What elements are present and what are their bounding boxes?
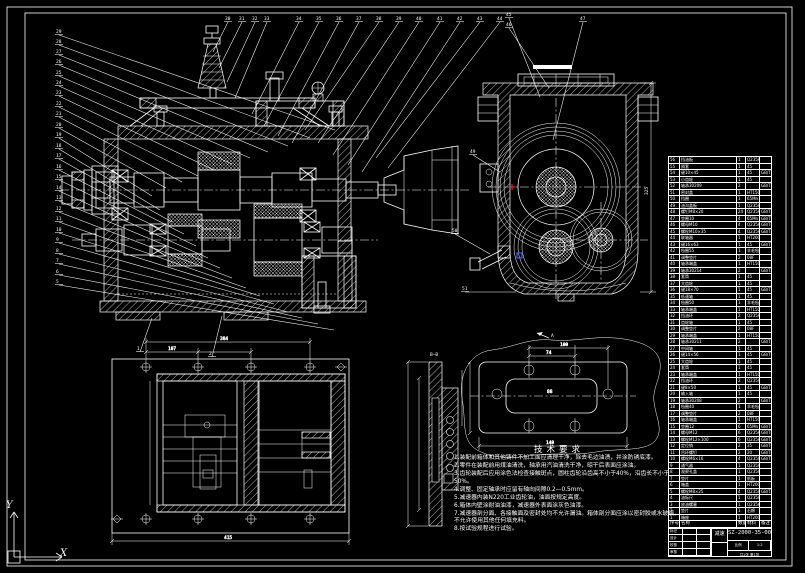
balloon-number: 2 [209,351,212,357]
parts-list-cell: 44 [669,235,680,241]
balloon-number: 27 [56,49,62,55]
parts-list-cell: 25 [669,359,680,365]
parts-list-cell: GB/T93 [760,424,771,430]
parts-list-cell: 箱盖 [680,482,737,488]
balloon-leader [292,22,359,143]
parts-list-cell: 12 [669,443,680,449]
parts-list-cell: 垫片 [680,508,737,514]
parts-list-cell: 低速轴 [680,294,737,300]
parts-list-cell: 羊毛毡 [746,248,760,254]
parts-list-cell: 调整垫片 [680,255,737,261]
drawing-number: SZ-2000-35-00 [728,528,771,541]
parts-list-cell: 挡油环 [680,378,737,384]
parts-list: 56挡油板1Q235A55隔套14554键10×45145GB/T109653小… [668,156,772,529]
parts-list-cell: 联轴器 [680,235,737,241]
balloon-number: 23 [56,90,62,96]
parts-list-cell: 1 [737,164,746,170]
parts-list-cell: Q235A [746,203,760,209]
balloon-leader [362,22,460,172]
parts-list-cell: 45 [746,164,760,170]
parts-list-cell [746,268,760,274]
input-shaft-train [92,146,458,238]
parts-list-cell: 38 [669,274,680,280]
parts-list-cell: 3 [669,502,680,508]
balloon-leader [59,243,274,304]
parts-list-cell: 45 [746,294,760,300]
parts-list-cell [760,482,771,488]
tech-req-items: 1.装配前箱体和其他铸件不加工面应清理干净，除去毛边油渍，并涂防锈底漆。2.零件… [454,455,680,534]
dim-cover-1: 100 [560,342,568,348]
dim-plan-1: 384 [220,336,228,342]
parts-list-cell: 24 [669,365,680,371]
view-direction-arrow: A [537,332,554,339]
tb-label-mark: 标记 [669,528,683,535]
parts-list-cell: 1 [737,404,746,410]
plan-right-chamber [259,430,331,488]
parts-list-cell: 08F [746,326,760,332]
parts-list-cell [760,177,771,183]
balloon-number: 8 [56,248,59,254]
parts-list-cell: 垫圈10 [680,216,737,222]
drawing-name: 减速器 [712,528,727,543]
parts-list-cell: 隔套 [680,164,737,170]
parts-list-cell: 1 [737,385,746,391]
dim-plan-3: 415 [224,535,232,541]
balloon-number: 12 [56,206,62,212]
balloon-number: 51 [462,286,468,292]
parts-list-cell: Q235A [746,469,760,475]
parts-list-cell: 08F [746,255,760,261]
side-view: 325 [470,65,658,301]
parts-list-cell: Q235A [746,463,760,469]
balloon-number: 7 [56,258,59,264]
balloon-number: 16 [56,164,62,170]
parts-list-cell: 1 [737,346,746,352]
tb-label-check: 校核 [669,542,683,549]
cover-holes [492,362,613,433]
balloon-number: 40 [416,16,422,22]
parts-list-cell: 2 [737,443,746,449]
parts-list-cell: HT150 [746,307,760,313]
parts-list-cell: 箱座 [680,515,737,521]
parts-list-cell: 螺栓M6×16 [680,456,737,462]
balloon-number: 17 [56,153,62,159]
parts-list-cell: 6 [737,430,746,436]
section-cut-mark [533,65,572,69]
parts-list-cell [760,359,771,365]
title-block-number-area: SZ-2000-35-00 比例 1:2 共1张 第1张 [728,528,771,556]
parts-list-cell: 55 [669,164,680,170]
parts-list-cell: 20 [669,391,680,397]
balloon-number: 11 [56,216,62,222]
parts-list-cell: 45 [746,281,760,287]
parts-list-cell: 毡圈50 [680,300,737,306]
parts-list-cell: 轴承端盖 [680,417,737,423]
parts-list-cell: 45 [746,352,760,358]
balloon-number: 36 [336,16,342,22]
parts-list-cell: 50 [669,196,680,202]
parts-list-cell: 65Mn [746,196,760,202]
parts-list-cell: 28 [669,339,680,345]
parts-list-cell: 1 [737,482,746,488]
parts-list-cell: 羊毛毡 [746,300,760,306]
parts-list-cell: 7 [669,476,680,482]
parts-list-cell [760,333,771,339]
bolt-holes [111,361,347,525]
parts-list-cell: 41 [669,255,680,261]
parts-list-cell: 齿轮轴 [680,320,737,326]
parts-list-cell: 34 [669,300,680,306]
balloon-number: 39 [396,16,402,22]
parts-list-cell: 65Mn [746,216,760,222]
parts-list-cell: 35 [746,443,760,449]
parts-list-cell: GB/T5781 [760,489,771,495]
balloon-number: 33 [264,16,270,22]
parts-list-cell: 22 [669,378,680,384]
parts-list-cell: 1 [737,203,746,209]
balloon-leader [59,45,310,138]
parts-list-cell [760,411,771,417]
parts-list-cell: 纸板 [746,476,760,482]
parts-list-cell: 36 [669,287,680,293]
parts-list-cell: 51 [669,190,680,196]
parts-list-cell [746,183,760,189]
parts-list-cell: 轴承端盖 [680,333,737,339]
parts-list-cell: 1 [737,242,746,248]
parts-list-cell: 1 [737,417,746,423]
balloon-number: 32 [252,16,258,22]
parts-list-cell [760,281,771,287]
parts-list-cell: GB/T297 [760,398,771,404]
parts-list-cell: 1 [737,333,746,339]
parts-list-cell: 轴承端盖 [680,261,737,267]
balloon-leader [376,22,480,158]
balloon-leader [509,28,549,88]
parts-list-cell: HT150 [746,190,760,196]
parts-list-cell: HT200 [746,235,760,241]
parts-list-cell: 油沟盖板 [680,203,737,209]
balloon-number: 21 [56,111,62,117]
parts-list-cell [746,398,760,404]
parts-list-cell: 2 [737,268,746,274]
parts-list-cell: 35 [669,294,680,300]
parts-list-cell [760,294,771,300]
parts-list-cell: GB/T297 [760,183,771,189]
top-cover [118,72,368,139]
parts-list-cell: 石棉 [746,508,760,514]
balloon-number: 15 [56,174,62,180]
balloon-number: 35 [316,16,322,22]
parts-list-cell: 1 [737,287,746,293]
snap-markers [509,184,522,258]
parts-list-cell: 56 [669,157,680,163]
balloon-leader [235,22,267,98]
parts-list-cell: Q235A [746,313,760,319]
parts-list-cell: Q235A [746,229,760,235]
parts-list-cell: 1 [737,177,746,183]
parts-list-cell: 16 [669,417,680,423]
parts-list-cell: 39 [669,268,680,274]
balloon-number: 43 [477,16,483,22]
parts-list-cell: 14 [669,430,680,436]
parts-list-cell: 9 [669,463,680,469]
parts-list-cell: 2 [669,508,680,514]
parts-list-cell: 11 [669,450,680,456]
parts-list-cell: Q235A [746,209,760,215]
title-block: 标记 设计 校核 审核 减速器 SZ-2000-35-00 比例 1:2 共1张… [668,527,772,557]
parts-list-cell: 轴承30208 [680,398,737,404]
parts-list-cell: 6 [669,482,680,488]
parts-list-cell: 1 [737,372,746,378]
parts-list-cell: 37 [669,281,680,287]
parts-list-cell: 1 [737,274,746,280]
parts-list-cell: 10 [669,456,680,462]
ucs-x-label: X [59,548,68,559]
parts-list-cell: Q235A [746,430,760,436]
balloon-leader [455,234,490,254]
parts-list-cell: 1 [737,495,746,501]
parts-list-cell: 32 [669,313,680,319]
parts-list-cell: GB/T1096 [760,170,771,176]
parts-list-cell: 5 [669,489,680,495]
parts-list-cell: 1 [737,463,746,469]
parts-list-cell: 15 [669,424,680,430]
tb-label-design: 设计 [669,535,683,542]
balloon-number: 13 [56,195,62,201]
balloon-number: 10 [56,227,62,233]
parts-list-cell: 40 [669,261,680,267]
parts-list-cell: 4 [737,456,746,462]
parts-list-cell: 轴承端盖 [680,307,737,313]
parts-list-cell: 20 [746,450,760,456]
parts-list-cell [760,157,771,163]
parts-list-cell [760,320,771,326]
tech-req-item: 2.零件在装配前用煤油清洗，轴承用汽油清洗干净，晾干后表面应涂油。 [454,463,680,471]
parts-list-cell: 2 [737,183,746,189]
parts-list-cell: GB/T297 [760,268,771,274]
parts-list-cell: 轴承30211 [680,339,737,345]
parts-list-cell [760,508,771,514]
parts-list-cell [760,476,771,482]
parts-list-cell: HT200 [746,515,760,521]
balloon-leader [348,22,440,165]
balloon-leader [473,155,500,172]
parts-list-cell: 键16×63 [680,242,737,248]
view-direction-label: A [551,333,554,339]
balloon-number: 29 [56,29,62,35]
parts-list-cell: 1 [737,469,746,475]
cover-view: 100 74 88 140 A [461,332,660,458]
parts-list-cell: 49 [669,203,680,209]
parts-list-cell: 24 [737,209,746,215]
parts-list-cell: GB/T297 [760,339,771,345]
parts-list-cell: Q235A [746,456,760,462]
parts-list-cell: 键14×56 [680,352,737,358]
parts-list-cell: 48 [669,209,680,215]
parts-list-cell [760,326,771,332]
parts-list-cell: 4 [737,216,746,222]
tech-req-item: 6.箱体内壁涂耐油油漆，减速器外表面涂灰色油漆。 [454,503,680,511]
parts-list-cell: 2 [737,398,746,404]
parts-list-cell: Q235A [746,437,760,443]
parts-list-cell: 29 [669,333,680,339]
tb-scale-value: 1:2 [749,541,771,550]
tech-req-item: 7.减速器剖分面、各接触面及密封处均不允许漏油。箱体剖分面应涂以密封胶或水玻璃，… [454,511,680,526]
parts-list-cell: 套筒 [680,274,737,280]
parts-list-cell: 4 [737,222,746,228]
balloon-number: 9 [56,237,59,243]
plan-view: 384 107 415 [110,336,351,545]
tech-req-item: 3.齿轮装配后应用涂色法检查接触斑点，圆柱齿轮沿齿高不小于40%，沿齿长不小于5… [454,471,680,486]
parts-list-cell: 中间轴 [680,346,737,352]
parts-list-cell: 45 [746,359,760,365]
balloon-number: 24 [56,80,62,86]
title-block-name-area: 减速器 [712,528,728,556]
parts-list-cell: HT200 [746,482,760,488]
parts-list-cell: 27 [669,346,680,352]
parts-list-cell [760,190,771,196]
title-block-signatures: 标记 设计 校核 审核 [669,528,712,556]
parts-list-cell: 45 [746,385,760,391]
balloon-number: 20 [56,122,62,128]
parts-list-cell: HT150 [746,333,760,339]
balloon-number: 18 [56,143,62,149]
balloon-number: 42 [457,16,463,22]
parts-list-cell: 键10×45 [680,170,737,176]
parts-list-cell: 小齿轮 [680,177,737,183]
parts-list-cell [760,203,771,209]
balloon-leader [227,22,255,82]
parts-list-cell: 1 [737,170,746,176]
parts-list-cell: 1 [737,508,746,514]
parts-list-cell: 放油螺塞 [680,502,737,508]
parts-list-cell: 螺母M10 [680,222,737,228]
parts-list-cell: 18 [669,404,680,410]
parts-list-cell [760,378,771,384]
parts-list-cell: 2 [737,339,746,345]
parts-list-cell: 33 [669,307,680,313]
parts-list-cell: GB/T117 [760,443,771,449]
parts-list-cell: GB/T1096 [760,352,771,358]
parts-list-cell: 通气器 [680,463,737,469]
balloon-number: 1 [137,346,140,352]
parts-list-cell: 13 [669,437,680,443]
cad-canvas: 325 [0,0,805,573]
parts-list-cell: 定位销 [680,443,737,449]
balloon-number: 34 [296,16,302,22]
plan-left-chamber [163,415,237,489]
parts-list-cell: 垫圈12 [680,424,737,430]
parts-list-cell: 1 [737,248,746,254]
parts-list-cell [760,417,771,423]
parts-list-cell: 6 [737,437,746,443]
parts-list-cell [760,495,771,501]
parts-list-cell: 1 [737,190,746,196]
parts-list-cell: 1 [737,261,746,267]
parts-list-cell: 键8×50 [680,385,737,391]
parts-list-cell: Q235A [746,489,760,495]
parts-list-cell [760,235,771,241]
balloon-number: 19 [56,132,62,138]
dim-side-height: 325 [644,187,650,195]
parts-list-cell: 大齿轮 [680,281,737,287]
parts-list-cell: 螺钉M8×20 [680,209,737,215]
parts-list-cell: 1 [737,281,746,287]
parts-list-cell: 4 [669,495,680,501]
parts-list-cell: 1 [737,359,746,365]
parts-list-cell [760,261,771,267]
parts-list-cell: 52 [669,183,680,189]
technical-requirements: 技术要求 1.装配前箱体和其他铸件不加工面应清理干净，除去毛边油渍，并涂防锈底漆… [454,443,680,534]
parts-list-cell: Q235A [746,222,760,228]
balloon-number: 37 [356,16,362,22]
parts-list-cell: 4 [737,229,746,235]
parts-list-cell [760,307,771,313]
parts-list-cell: 08F [746,411,760,417]
parts-list-cell: 21 [669,385,680,391]
parts-list-cell: 套筒 [680,365,737,371]
parts-list-rows: 56挡油板1Q235A55隔套14554键10×45145GB/T109653小… [669,157,771,521]
tb-label-approve: 审核 [669,549,683,556]
balloon-number: 25 [56,70,62,76]
parts-list-cell [760,313,771,319]
balloon-leader [278,22,339,136]
parts-list-cell [760,515,771,521]
balloon-number: 50 [452,228,458,234]
balloon-number: 41 [437,16,443,22]
parts-list-cell: 1 [737,196,746,202]
parts-list-cell: 羊毛毡 [746,404,760,410]
tb-scale-label: 比例 [728,541,750,550]
balloon-number: 14 [56,185,62,191]
parts-list-cell: 1 [737,235,746,241]
parts-list-cell [760,463,771,469]
parts-list-cell: 42 [669,248,680,254]
balloon-leader [553,22,583,140]
parts-list-cell: 2 [737,326,746,332]
main-assembly-view [60,26,470,320]
parts-list-cell: 1 [737,502,746,508]
parts-list-cell: 轴承30214 [680,268,737,274]
parts-list-cell: 密封盖 [680,190,737,196]
parts-list-cell: 1 [737,300,746,306]
parts-list-cell [760,365,771,371]
parts-list-cell: 观察孔盖 [680,469,737,475]
parts-list-cell: 螺栓M10×35 [680,229,737,235]
parts-list-cell: 1 [737,365,746,371]
parts-list-cell: 23 [669,372,680,378]
parts-list-cell: 47 [669,216,680,222]
parts-list-cell: GB/T1096 [760,287,771,293]
balloon-number: 47 [580,16,586,22]
parts-list-cell: 45 [746,287,760,293]
parts-list-cell: GB/T825 [760,450,771,456]
balloon-number: 28 [56,39,62,45]
parts-list-cell: GB/T6170 [760,430,771,436]
parts-list-cell [760,300,771,306]
parts-list-cell: Q235A [746,502,760,508]
parts-list-cell [760,274,771,280]
tech-req-item: 1.装配前箱体和其他铸件不加工面应清理干净，除去毛边油渍，并涂防锈底漆。 [454,455,680,463]
parts-list-cell: 挡油环 [680,313,737,319]
parts-list-cell: HT150 [746,261,760,267]
parts-list-cell: 65Mn [746,424,760,430]
parts-list-cell: 2 [737,378,746,384]
parts-list-cell: 45 [746,177,760,183]
parts-list-cell [760,164,771,170]
parts-list-cell [760,255,771,261]
section-dimensions [406,360,428,528]
